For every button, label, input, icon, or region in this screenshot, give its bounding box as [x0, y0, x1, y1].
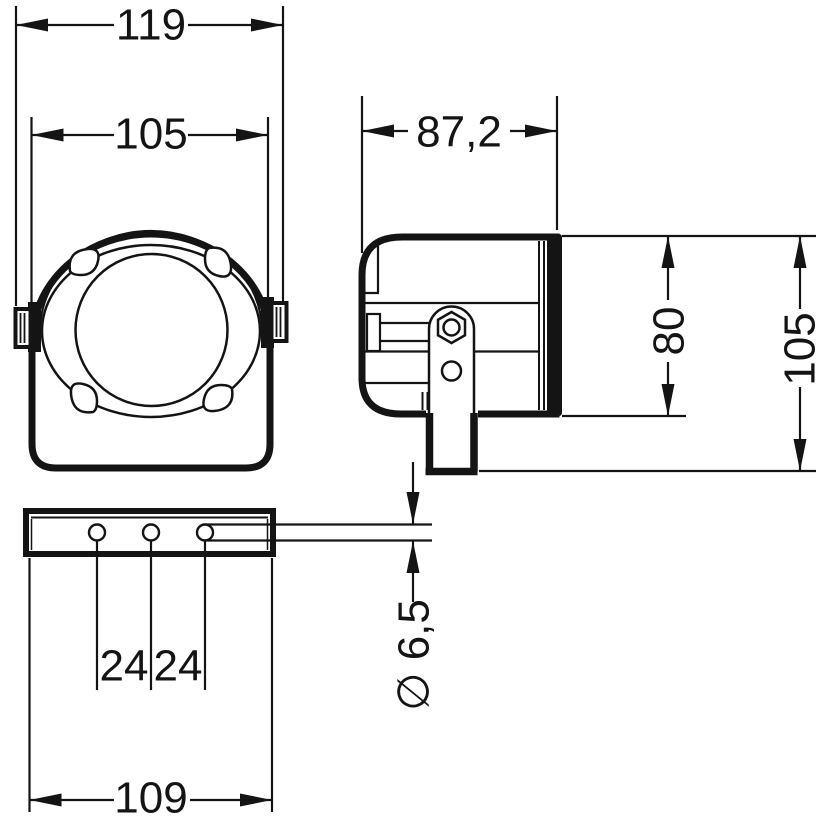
- mounting-plate-view: [26, 511, 273, 554]
- corner-slot-bottom-right: [203, 385, 232, 411]
- bracket-hole: [442, 362, 461, 381]
- corner-slot-top-left: [70, 249, 99, 275]
- dim-overall-height-label: 105: [776, 312, 825, 385]
- right-tab-plate: [272, 303, 287, 341]
- dimension-hole-diameter: ∅ 6,5: [205, 462, 439, 711]
- dim-overall-width-label: 119: [116, 1, 186, 50]
- t-slot-stem: [367, 314, 380, 351]
- corner-slot-top-right: [205, 248, 231, 277]
- dim-body-height-label: 80: [645, 307, 694, 356]
- dim-hole-diameter-label: ∅ 6,5: [390, 599, 439, 711]
- plate-hole-2: [143, 525, 159, 541]
- plate-hole-3: [197, 525, 213, 541]
- dim-depth-label: 87,2: [416, 108, 502, 157]
- technical-drawing: 119 105 87,2 80 105 24 24: [0, 0, 831, 831]
- dimension-depth: 87,2: [362, 96, 557, 253]
- dim-body-width-label: 105: [114, 110, 187, 159]
- dimension-hole-pitch: 24 24: [97, 541, 205, 691]
- front-body-outline: [32, 234, 270, 468]
- front-rim-band: [547, 234, 562, 416]
- hex-nut-bolt-circle: [444, 320, 460, 336]
- dim-plate-length-label: 109: [114, 774, 187, 823]
- corner-slot-bottom-left: [71, 383, 97, 412]
- dim-hole-pitch-right-label: 24: [154, 642, 203, 691]
- dim-hole-pitch-left-label: 24: [100, 642, 149, 691]
- left-tab-plate: [16, 309, 31, 347]
- technical-drawing-canvas: 119 105 87,2 80 105 24 24: [0, 0, 831, 831]
- side-view: [362, 234, 562, 472]
- front-view: [16, 231, 287, 468]
- leg-mask: [426, 407, 478, 468]
- plate-hole-1: [89, 525, 105, 541]
